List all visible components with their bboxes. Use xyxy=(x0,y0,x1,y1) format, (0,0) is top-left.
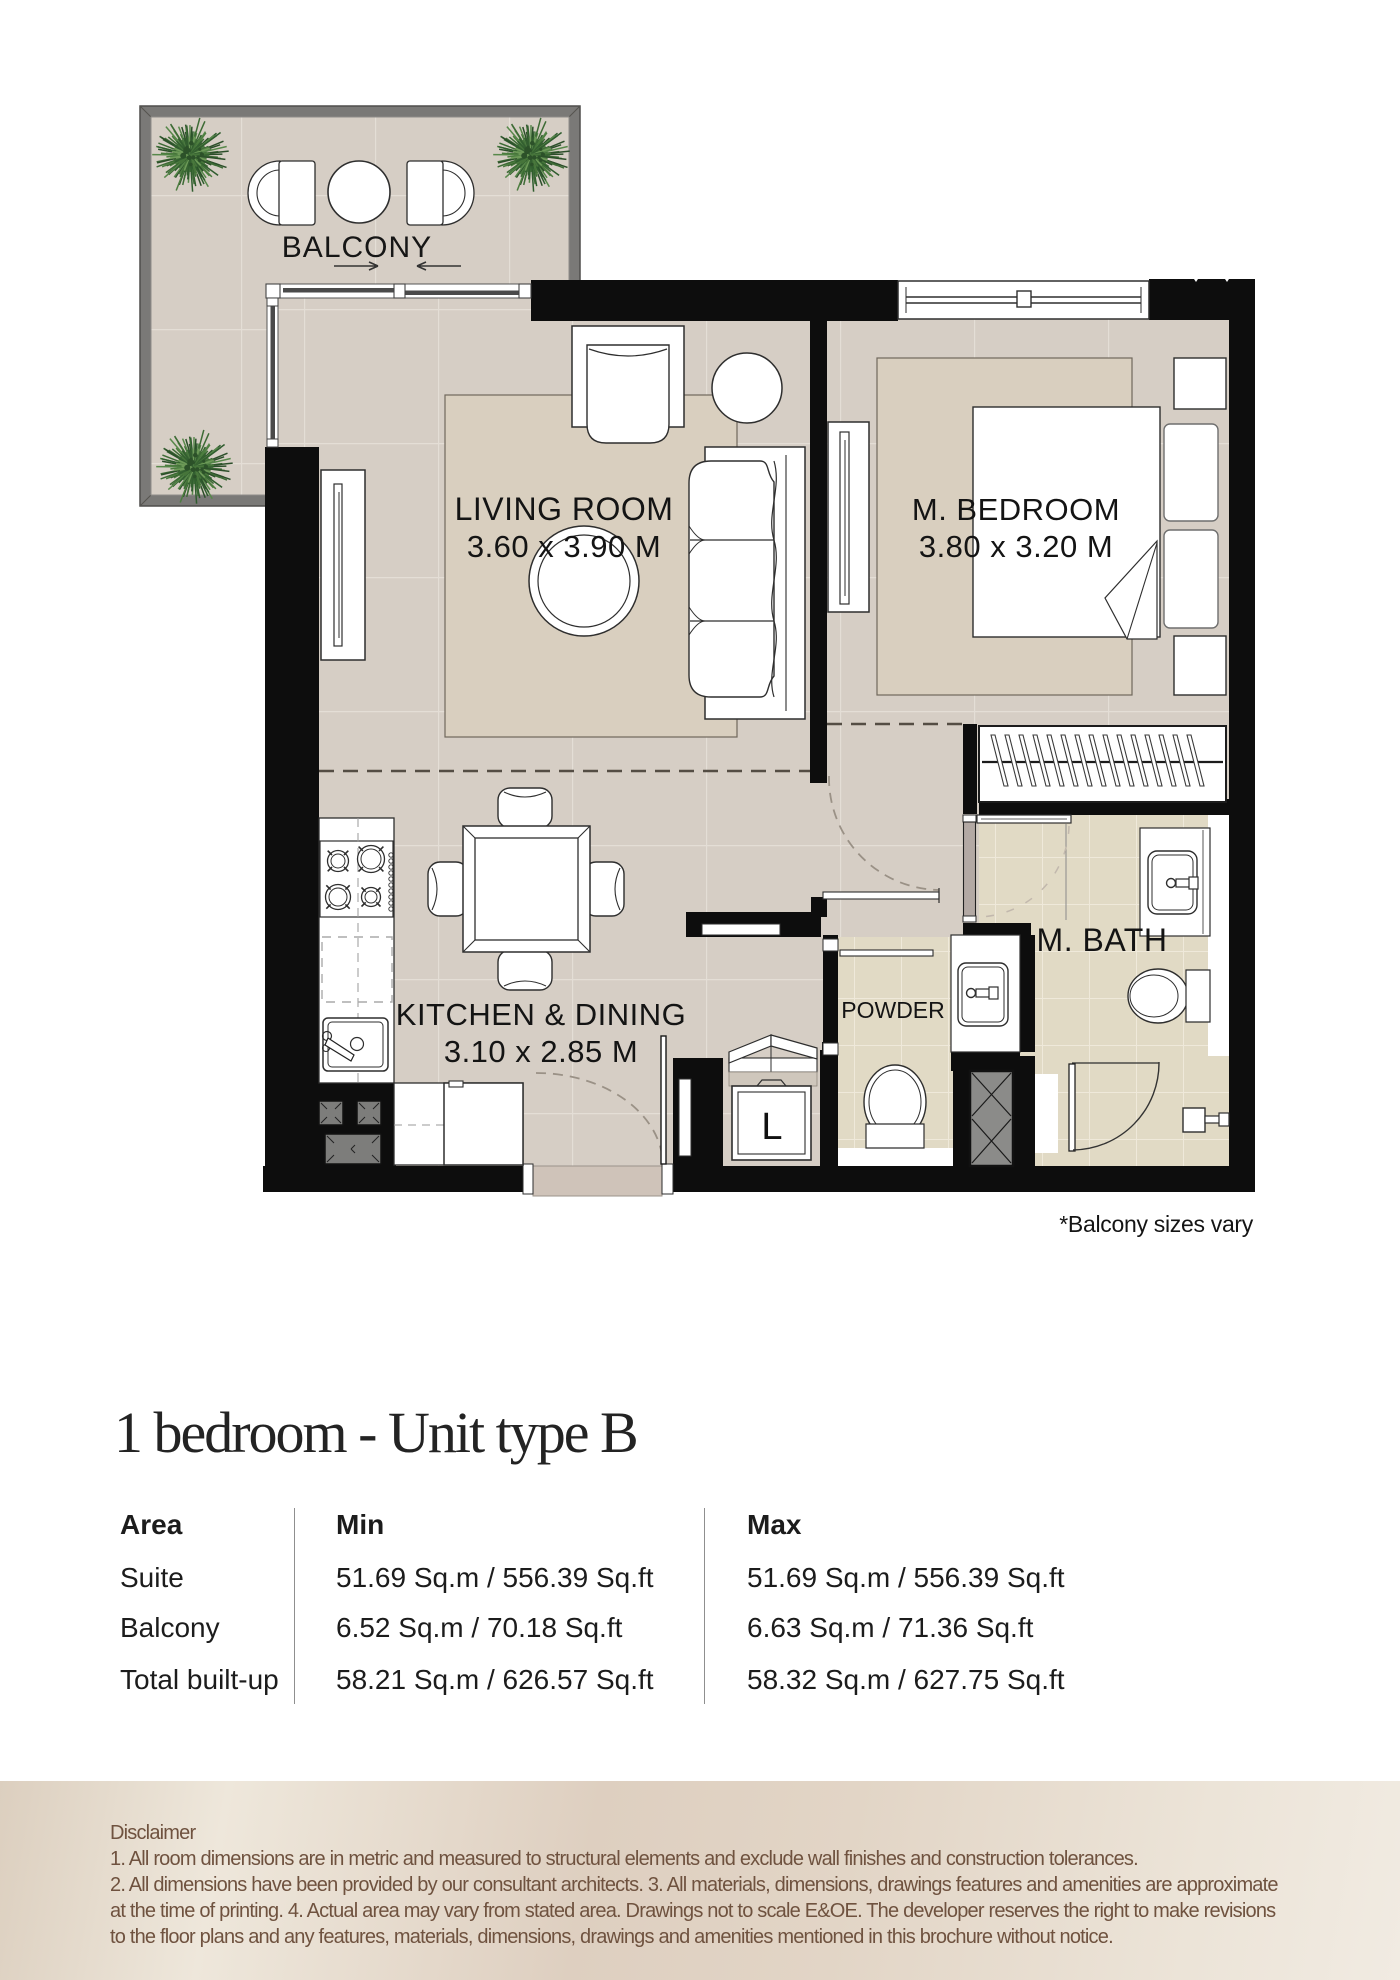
svg-text:M. BATH: M. BATH xyxy=(1037,922,1168,958)
svg-text:LIVING ROOM: LIVING ROOM xyxy=(455,491,674,527)
svg-text:3.80 x 3.20 M: 3.80 x 3.20 M xyxy=(919,529,1113,564)
svg-text:3.60 x 3.90 M: 3.60 x 3.90 M xyxy=(467,529,661,564)
svg-text:POWDER: POWDER xyxy=(841,997,945,1023)
svg-text:3.10 x 2.85 M: 3.10 x 2.85 M xyxy=(444,1034,638,1069)
svg-text:M. BEDROOM: M. BEDROOM xyxy=(912,492,1120,527)
svg-text:*Balcony sizes vary: *Balcony sizes vary xyxy=(1059,1211,1254,1237)
svg-text:KITCHEN & DINING: KITCHEN & DINING xyxy=(396,997,686,1032)
svg-text:BALCONY: BALCONY xyxy=(282,231,432,264)
svg-text:L: L xyxy=(761,1106,782,1148)
